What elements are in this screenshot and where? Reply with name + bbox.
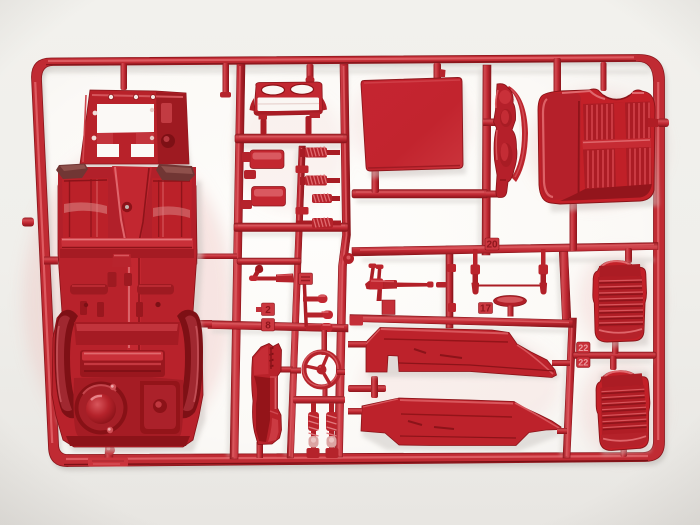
svg-text:22: 22	[578, 343, 588, 353]
svg-text:17: 17	[480, 304, 492, 315]
svg-text:2: 2	[265, 305, 271, 316]
svg-text:8: 8	[265, 321, 271, 332]
svg-text:20: 20	[486, 240, 498, 251]
svg-text:22: 22	[578, 358, 588, 368]
